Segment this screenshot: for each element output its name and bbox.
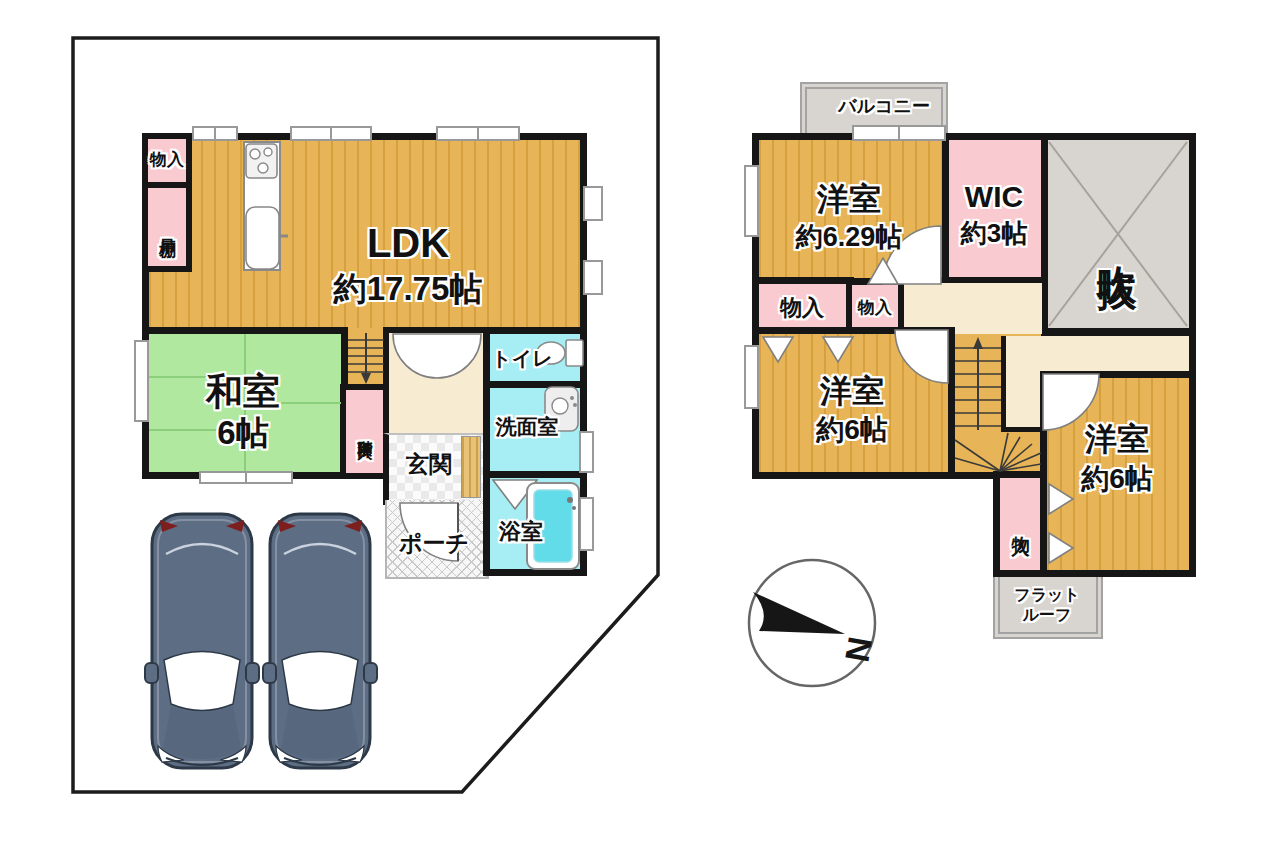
floor-plan: N 物入 吊戸棚 LDK 約17.75帖 和室 6帖 階段下押入 トイレ 洗面室… [0,0,1280,850]
label-washitsu: 和室 [206,373,280,412]
car-1 [145,514,259,768]
compass: N [749,560,880,686]
label-bedroom3-area: 約6帖 [1081,464,1153,493]
label-storage-2f-c: 物入 [1011,522,1030,524]
label-bedroom1: 洋室 [817,183,881,217]
compass-north-label: N [838,634,880,665]
label-bedroom3: 洋室 [1085,423,1149,457]
label-flat-roof: フラット ルーフ [1014,585,1080,625]
label-flat-roof-line2: ルーフ [1023,606,1072,623]
entrance-step [461,436,481,498]
label-washroom: 洗面室 [496,416,559,438]
label-wic: WIC [965,181,1023,213]
label-storage-2f-b: 物入 [858,299,892,317]
label-void: 吹抜 [1096,234,1138,246]
label-bedroom2-area: 約6帖 [816,415,888,444]
label-bedroom2: 洋室 [820,375,884,409]
compass-needle [753,592,845,634]
hall-1f [383,327,490,439]
label-storage-2f-a: 物入 [780,296,824,319]
label-toilet: トイレ [491,348,552,369]
label-flat-roof-line1: フラット [1014,586,1080,603]
label-ldk-area: 約17.75帖 [334,272,483,307]
label-balcony: バルコニー [838,97,930,116]
label-porch: ポーチ [399,531,469,555]
label-bedroom1-area: 約6.29帖 [796,223,903,251]
label-ldk: LDK [367,222,449,264]
label-bathroom: 浴室 [499,520,543,543]
kitchen-counter [243,141,281,271]
label-hanging-cupboard: 吊戸棚 [158,226,176,229]
label-wic-area: 約3帖 [961,220,1027,247]
car-2 [263,514,377,768]
label-washitsu-area: 6帖 [217,416,268,451]
label-under-stair-closet: 階段下押入 [357,429,373,434]
label-entrance: 玄関 [406,452,452,476]
label-storage-1f: 物入 [150,151,184,169]
